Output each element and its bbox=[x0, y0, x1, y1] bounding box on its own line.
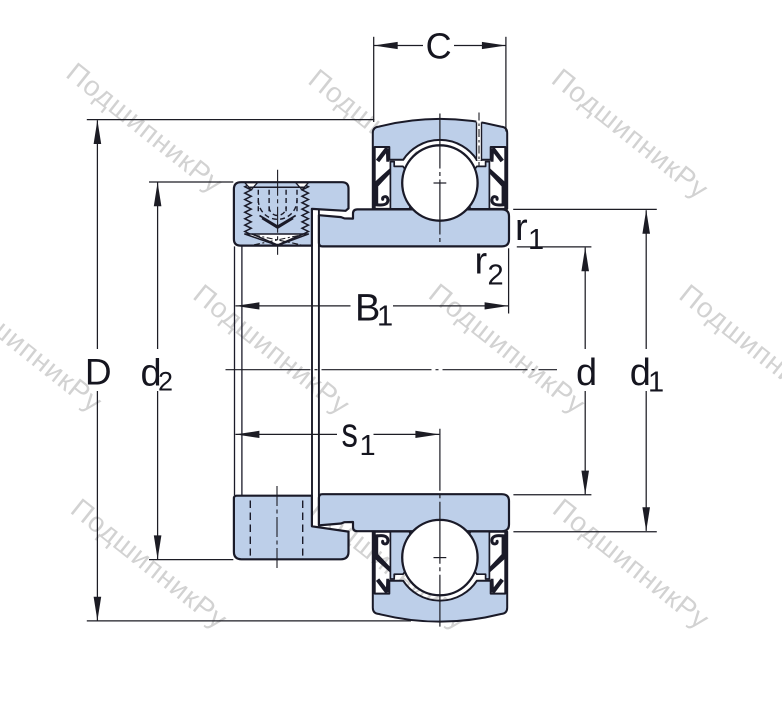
svg-text:C: C bbox=[426, 25, 452, 66]
svg-text:ПодшипникРу: ПодшипникРу bbox=[65, 492, 233, 635]
svg-text:s: s bbox=[342, 409, 358, 456]
svg-text:1: 1 bbox=[648, 366, 664, 398]
svg-text:1: 1 bbox=[360, 430, 376, 462]
svg-text:ПодшипникРу: ПодшипникРу bbox=[61, 57, 229, 200]
svg-text:ПодшипникРу: ПодшипникРу bbox=[188, 278, 356, 421]
svg-text:ПодшипникРу: ПодшипникРу bbox=[674, 278, 782, 421]
svg-text:1: 1 bbox=[528, 224, 544, 256]
svg-text:r: r bbox=[515, 207, 528, 249]
svg-text:ПодшипникРу: ПодшипникРу bbox=[0, 275, 108, 418]
svg-text:d: d bbox=[576, 352, 597, 394]
svg-text:ПодшипникРу: ПодшипникРу bbox=[546, 62, 714, 205]
svg-text:D: D bbox=[85, 351, 112, 392]
svg-text:2: 2 bbox=[488, 259, 504, 291]
svg-text:r: r bbox=[475, 240, 488, 282]
svg-text:ПодшипникРу: ПодшипникРу bbox=[547, 492, 715, 635]
svg-text:1: 1 bbox=[377, 301, 393, 333]
svg-text:2: 2 bbox=[158, 367, 173, 397]
svg-text:ПодшипникРу: ПодшипникРу bbox=[423, 277, 591, 420]
